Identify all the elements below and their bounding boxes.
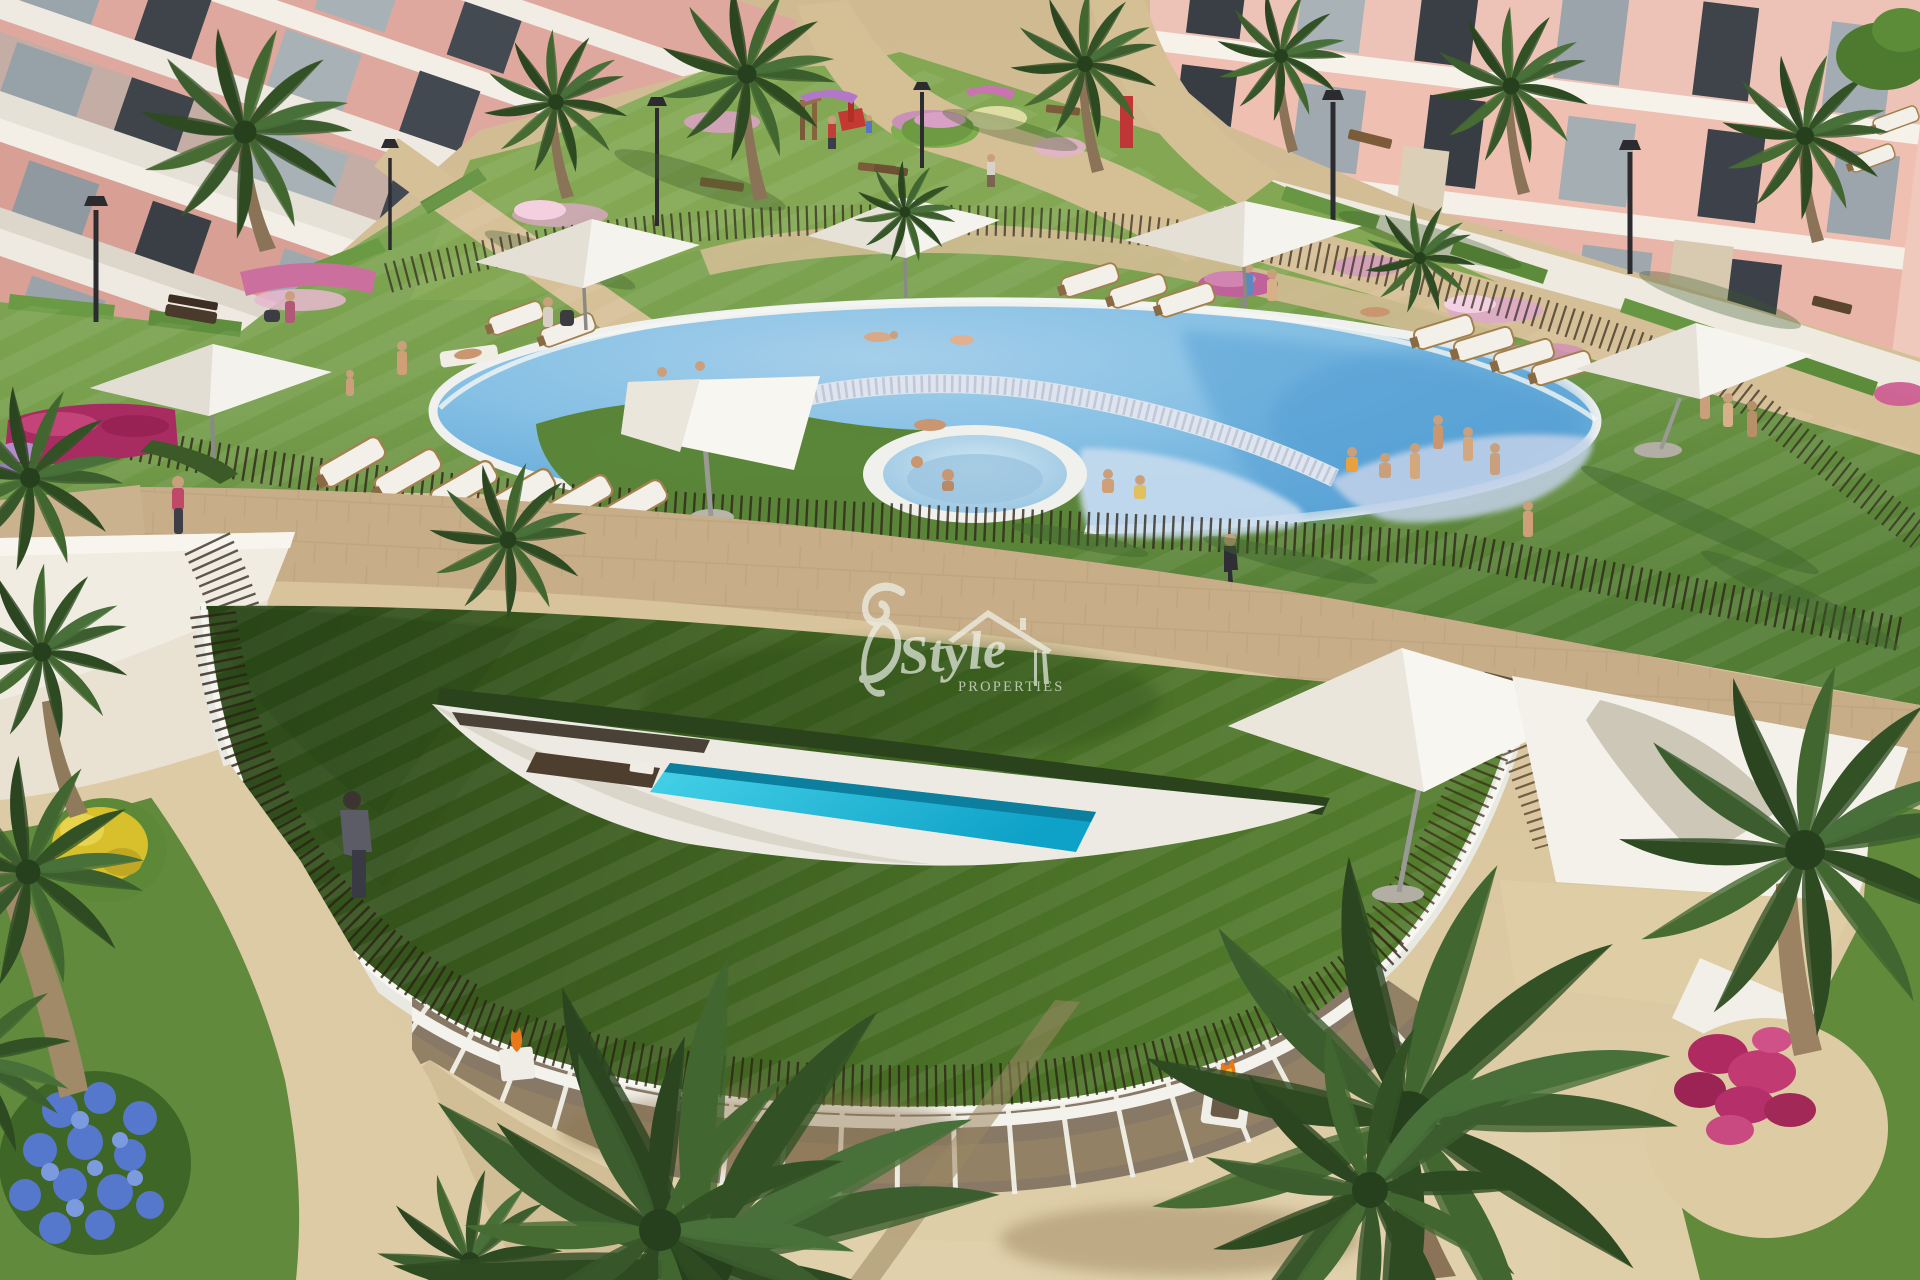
svg-text:PROPERTIES: PROPERTIES <box>958 679 1065 695</box>
svg-text:Style: Style <box>897 619 1009 686</box>
